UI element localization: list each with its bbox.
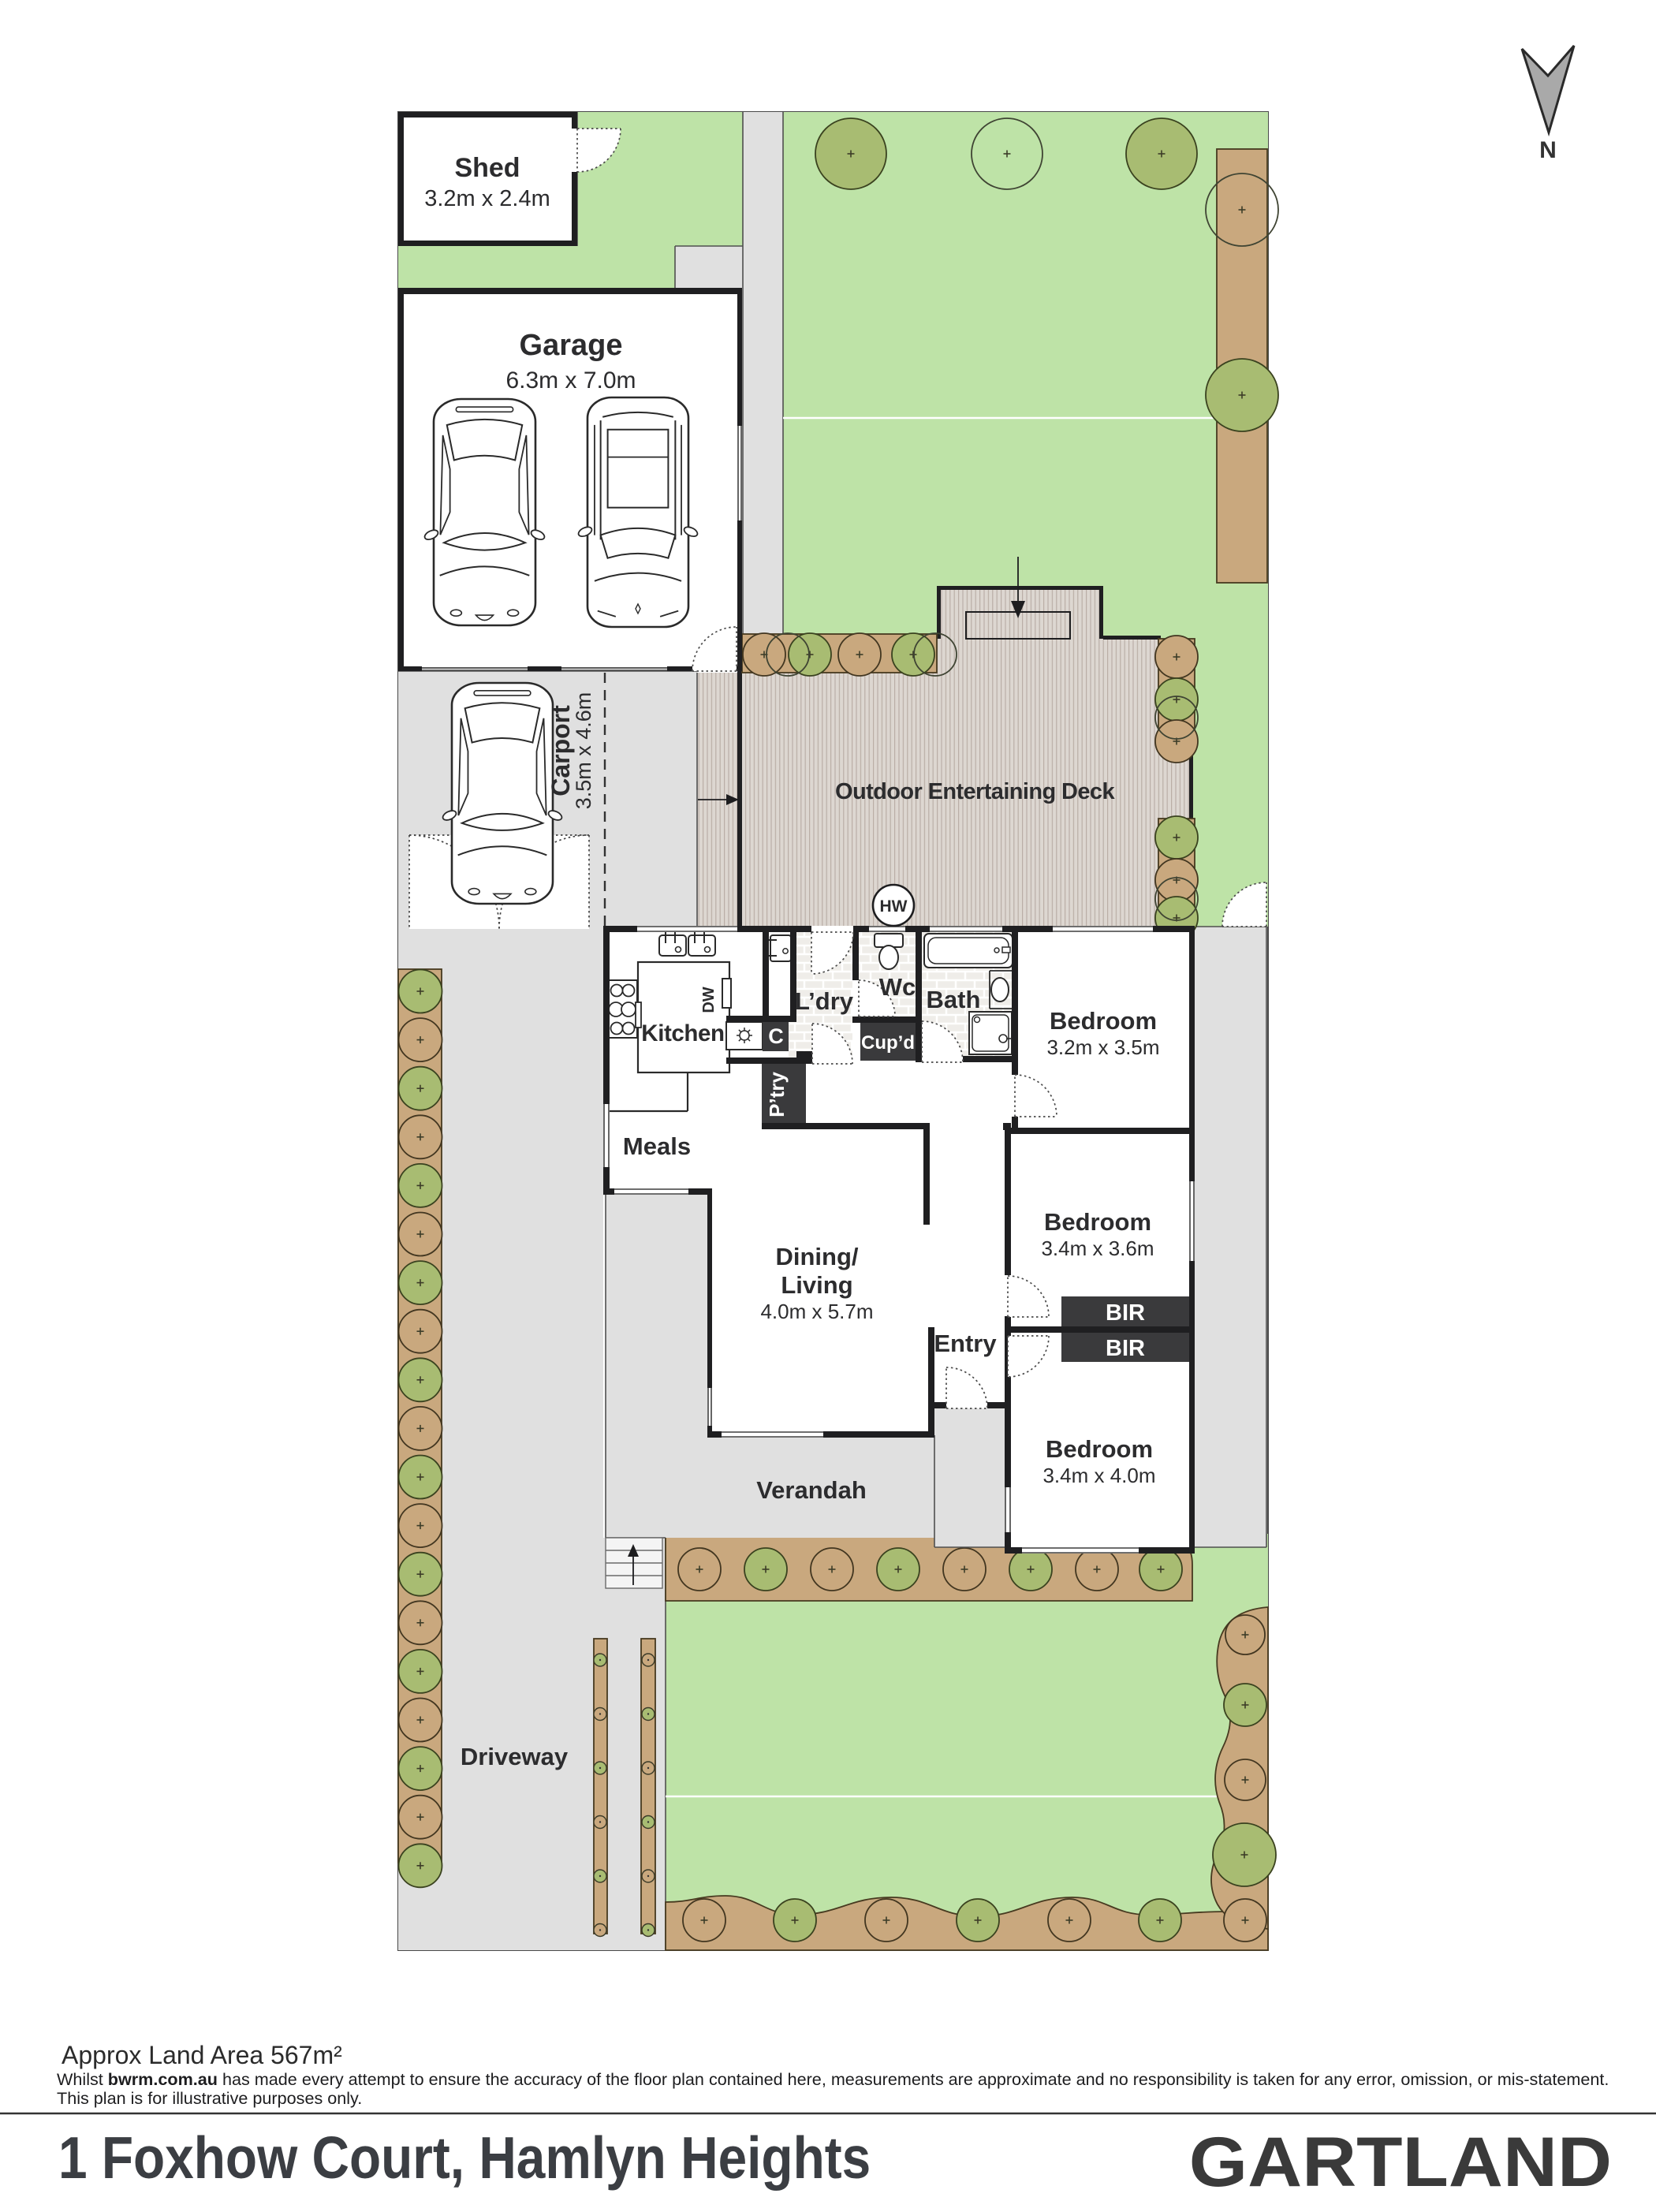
svg-text:Verandah: Verandah [756, 1476, 867, 1504]
svg-text:Bedroom: Bedroom [1044, 1208, 1151, 1236]
svg-text:Carport: Carport [546, 705, 575, 796]
svg-text:This plan is for illustrative: This plan is for illustrative purposes o… [57, 2088, 362, 2108]
svg-text:Approx Land Area 567m²: Approx Land Area 567m² [62, 2041, 342, 2069]
svg-text:Shed: Shed [454, 153, 520, 183]
svg-text:1 Foxhow Court, Hamlyn Heights: 1 Foxhow Court, Hamlyn Heights [58, 2124, 871, 2191]
svg-text:Bedroom: Bedroom [1050, 1007, 1157, 1035]
svg-text:Kitchen: Kitchen [641, 1020, 724, 1046]
svg-text:Cup’d: Cup’d [861, 1032, 915, 1054]
svg-text:Bedroom: Bedroom [1046, 1435, 1153, 1463]
svg-text:DW: DW [700, 987, 718, 1013]
svg-text:Whilst bwrm.com.au has made ev: Whilst bwrm.com.au has made every attemp… [57, 2069, 1609, 2089]
svg-text:Meals: Meals [623, 1132, 691, 1160]
svg-text:Outdoor Entertaining Deck: Outdoor Entertaining Deck [835, 779, 1115, 804]
svg-text:P’try: P’try [765, 1072, 789, 1117]
svg-text:HW: HW [880, 897, 908, 916]
svg-text:3.2m x 2.4m: 3.2m x 2.4m [424, 186, 550, 211]
svg-text:GARTLAND: GARTLAND [1189, 2122, 1612, 2201]
svg-text:L’dry: L’dry [795, 987, 854, 1015]
svg-text:Bath: Bath [927, 986, 981, 1013]
svg-text:Dining/: Dining/ [775, 1243, 858, 1270]
svg-text:Driveway: Driveway [461, 1743, 569, 1770]
svg-text:3.4m x 3.6m: 3.4m x 3.6m [1041, 1237, 1154, 1260]
svg-text:Living: Living [781, 1271, 852, 1299]
svg-text:BIR: BIR [1106, 1336, 1145, 1361]
svg-text:Entry: Entry [934, 1330, 997, 1357]
svg-text:Wc: Wc [879, 973, 916, 1001]
svg-text:6.3m x 7.0m: 6.3m x 7.0m [505, 367, 636, 394]
svg-text:3.2m x 3.5m: 3.2m x 3.5m [1046, 1035, 1159, 1059]
svg-text:C: C [768, 1024, 784, 1048]
svg-text:Garage: Garage [520, 329, 623, 362]
svg-text:3.5m x 4.6m: 3.5m x 4.6m [572, 692, 595, 810]
svg-text:BIR: BIR [1106, 1300, 1145, 1326]
svg-text:N: N [1539, 137, 1557, 163]
svg-text:3.4m x 4.0m: 3.4m x 4.0m [1042, 1464, 1155, 1487]
svg-text:4.0m x 5.7m: 4.0m x 5.7m [760, 1300, 873, 1323]
